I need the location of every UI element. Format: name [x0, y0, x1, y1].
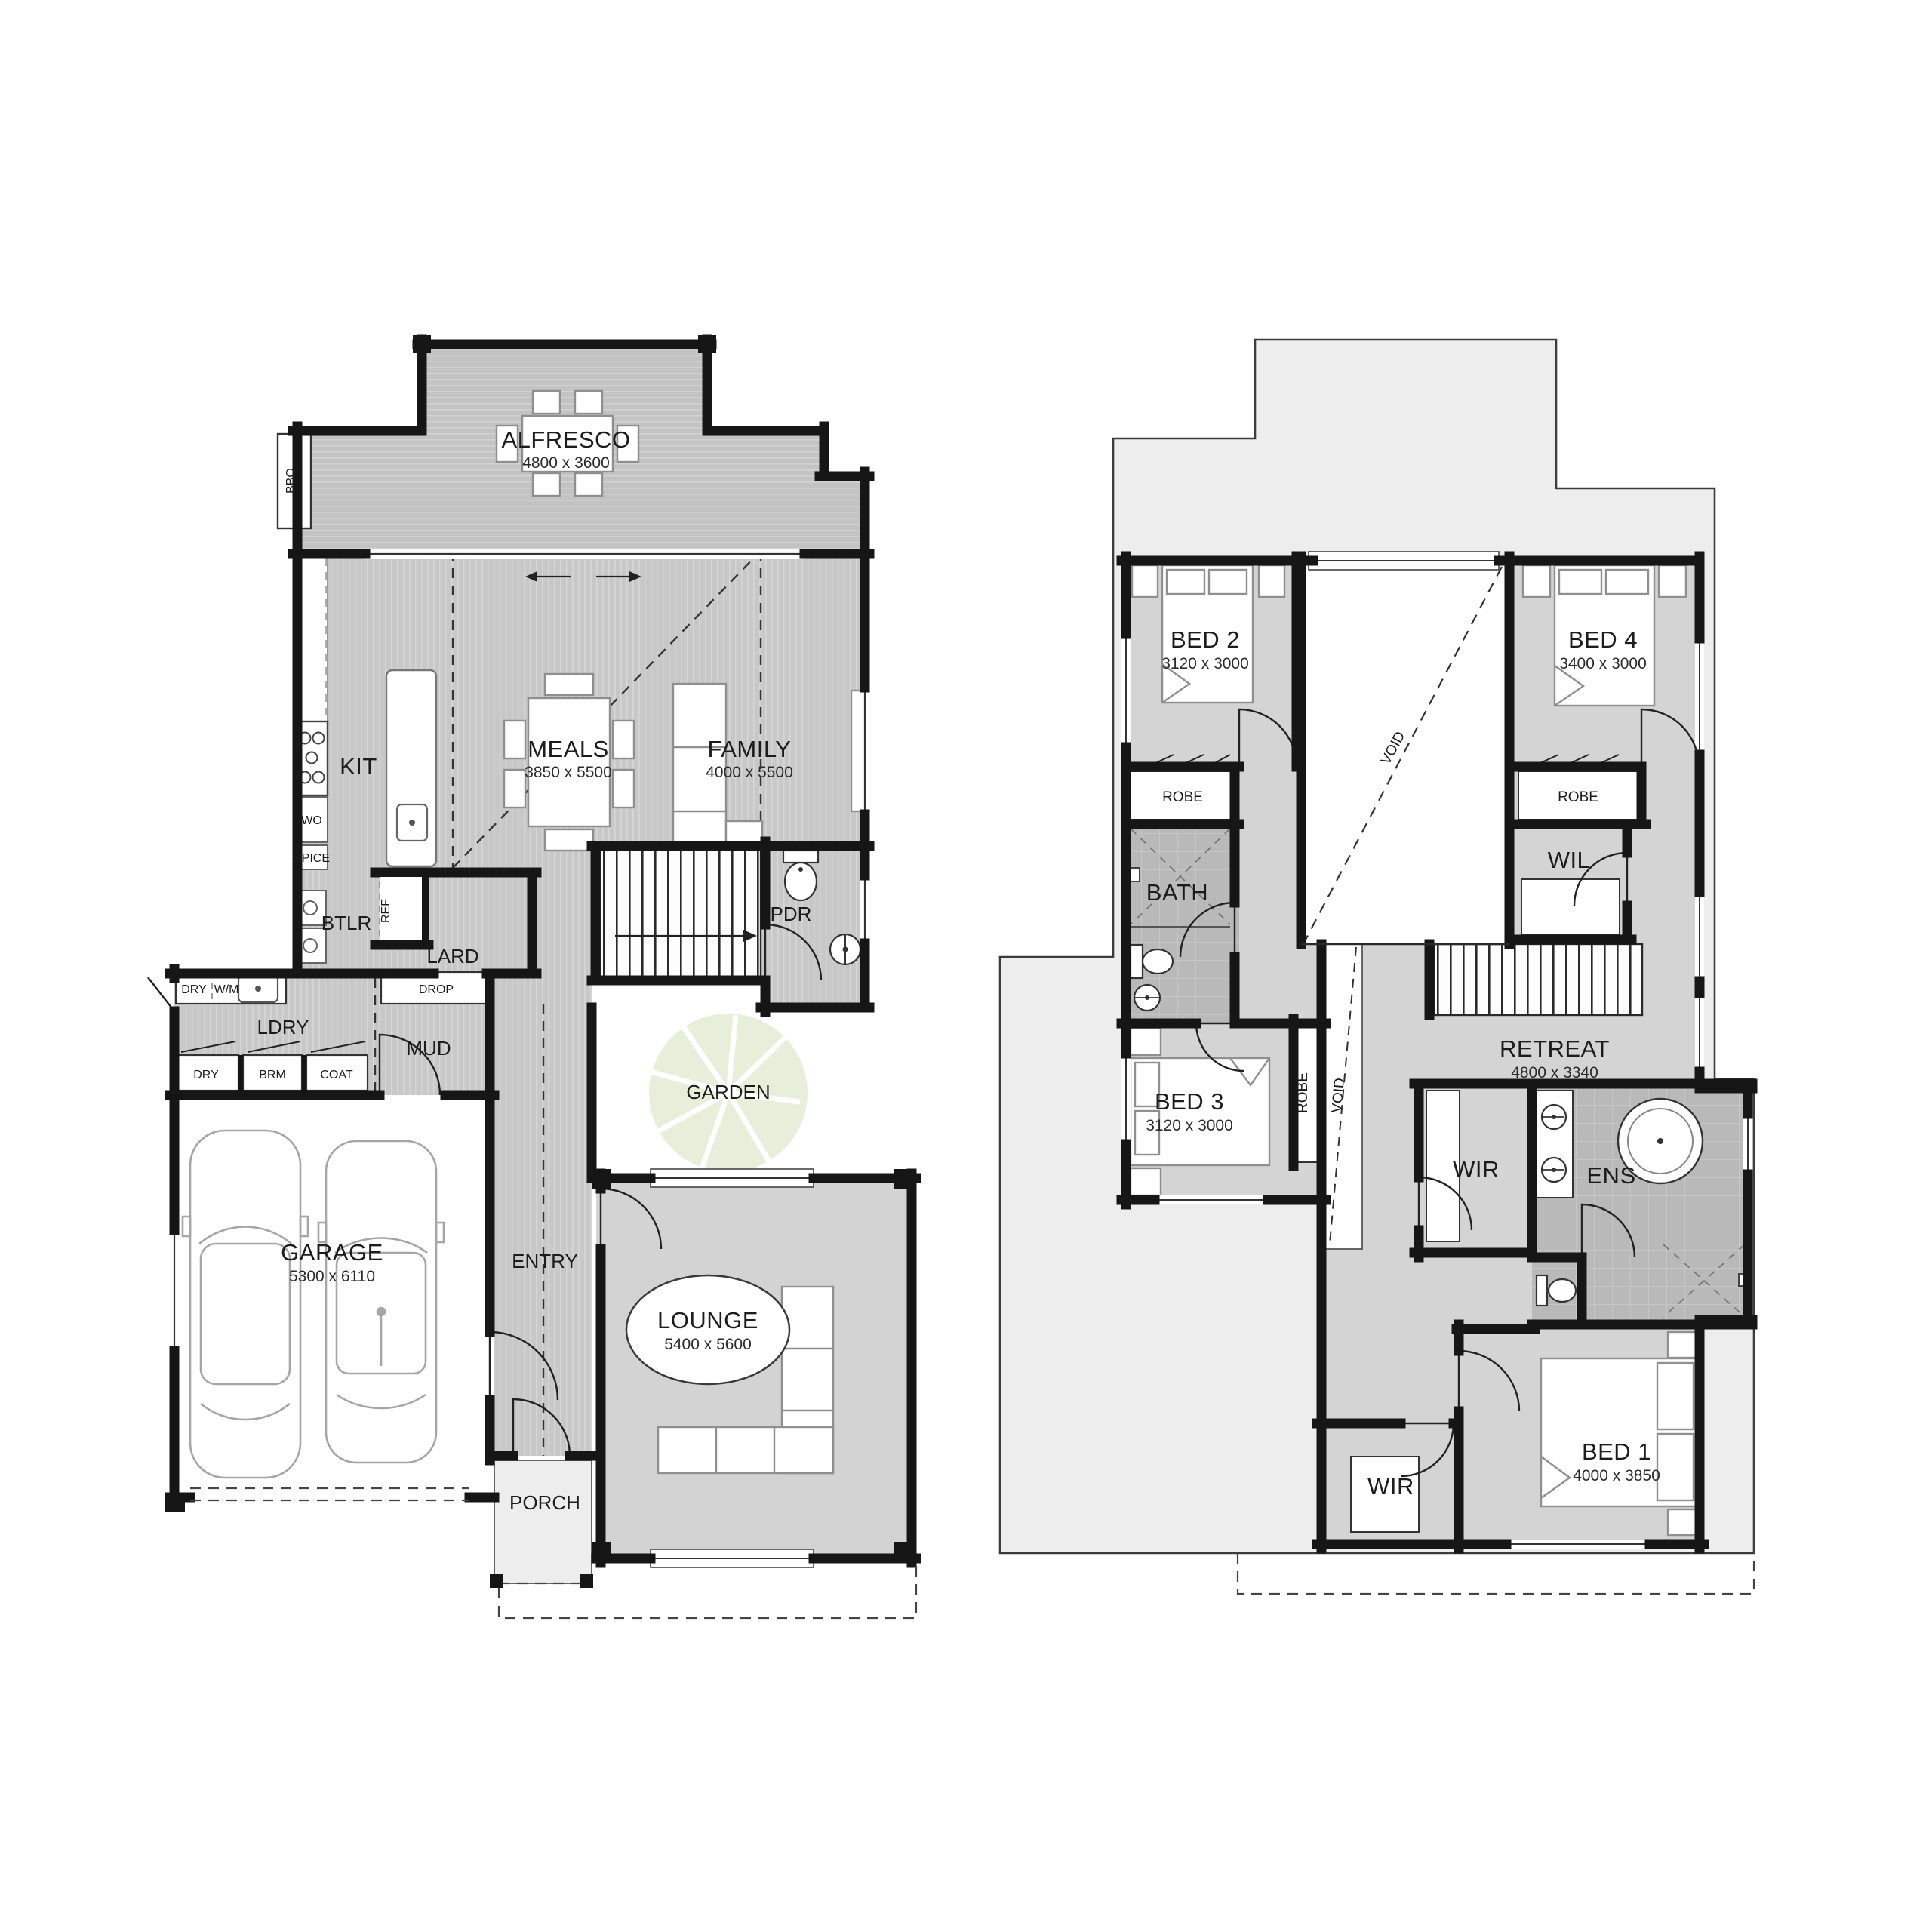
void-area [1301, 561, 1509, 944]
brm-label: BRM [259, 1069, 286, 1081]
meals-dims: 3850 x 5500 [525, 764, 612, 781]
family-dims: 4000 x 5500 [706, 764, 793, 781]
wo-label: WO [301, 814, 322, 827]
toilet-cistern [783, 851, 818, 863]
wm-label: W/M [214, 983, 239, 996]
bed4-dims: 3400 x 3000 [1559, 655, 1647, 672]
kitchen-label: KIT [340, 753, 377, 780]
wil-label: WIL [1548, 847, 1591, 873]
entry-label: ENTRY [512, 1250, 578, 1272]
stairs-upper [1434, 944, 1642, 1015]
robe-bed4-label: ROBE [1558, 789, 1598, 805]
family-label: FAMILY [708, 736, 792, 762]
bed3-dims: 3120 x 3000 [1146, 1117, 1233, 1134]
mud-label: MUD [406, 1037, 451, 1060]
stairs-ground [600, 846, 761, 980]
dry-bench-label: DRY [181, 983, 207, 996]
bed2-dims: 3120 x 3000 [1161, 655, 1249, 672]
garden-label: GARDEN [686, 1081, 770, 1103]
floorplan-sheet: ALFRESCO 4800 x 3600 BBQ KIT MEALS 3850 … [0, 0, 1932, 1932]
drop-label: DROP [419, 983, 454, 996]
toilet-ensuite [1549, 1279, 1576, 1302]
bed1-dims: 4000 x 3850 [1573, 1467, 1660, 1484]
pdr-label: PDR [771, 903, 812, 925]
tv-unit [851, 691, 862, 811]
spice-label: SPICE [294, 852, 330, 865]
wil-shelf [1521, 879, 1620, 935]
garage-label: GARAGE [281, 1239, 383, 1266]
upper-dashed-outline [1238, 1553, 1754, 1594]
btlr-label: BTLR [321, 912, 371, 934]
ref-label: REF [380, 899, 392, 923]
ldry-label: LDRY [257, 1016, 309, 1038]
ens-label: ENS [1586, 1162, 1635, 1189]
meals-label: MEALS [528, 736, 609, 762]
bed1-furniture [1541, 1332, 1698, 1535]
retreat-label: RETREAT [1500, 1035, 1610, 1062]
coat-label: COAT [320, 1069, 352, 1081]
wir-master-label: WIR [1453, 1156, 1500, 1183]
dry-cupboard-label: DRY [193, 1069, 219, 1081]
alfresco-dims: 4800 x 3600 [522, 454, 610, 472]
bed3-label: BED 3 [1155, 1088, 1224, 1115]
first-floor-plan: BED 2 3120 x 3000 ROBE BATH VOID BED 4 3… [1000, 340, 1754, 1594]
lounge-dims: 5400 x 5600 [664, 1336, 752, 1353]
bed2-label: BED 2 [1171, 626, 1240, 653]
alfresco-label: ALFRESCO [501, 426, 630, 453]
garage-dims: 5300 x 6110 [289, 1268, 375, 1285]
bath-label: BATH [1146, 879, 1208, 906]
robe-bed3-label: ROBE [1295, 1072, 1311, 1113]
robe-bed2-label: ROBE [1162, 789, 1203, 805]
garage-floor [174, 1095, 490, 1497]
porch-slab [494, 1460, 592, 1583]
retreat-dims: 4800 x 3340 [1511, 1064, 1598, 1081]
lounge-label: LOUNGE [657, 1307, 758, 1334]
void-strip-label: VOID [1329, 1077, 1348, 1113]
floorplan-drawing: ALFRESCO 4800 x 3600 BBQ KIT MEALS 3850 … [0, 0, 1932, 1932]
ground-floor-plan: ALFRESCO 4800 x 3600 BBQ KIT MEALS 3850 … [148, 335, 916, 1618]
bed4-label: BED 4 [1568, 626, 1638, 653]
lard-label: LARD [426, 945, 478, 968]
hall-floor [532, 846, 592, 974]
toilet-bath [1143, 949, 1173, 974]
porch-label: PORCH [509, 1491, 580, 1514]
bbq-label: BBQ [285, 468, 297, 494]
wir-lower-label: WIR [1367, 1473, 1414, 1500]
bed1-label: BED 1 [1582, 1438, 1651, 1465]
